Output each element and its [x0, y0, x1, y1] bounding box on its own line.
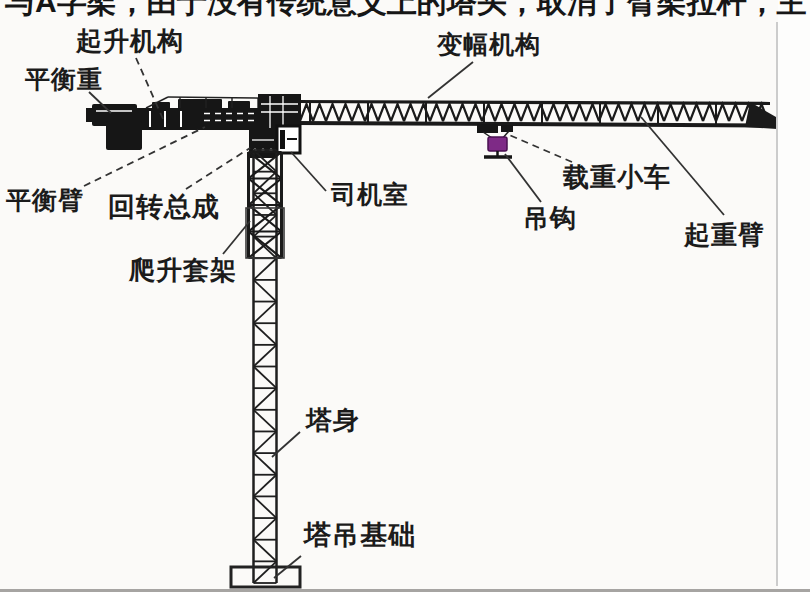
operator-cab-shape [277, 126, 300, 153]
diagram-page: 与A字架，由于没有传统意义上的塔头，取消了臂架拉杆，主 [0, 0, 810, 594]
leader-operator-cab [291, 152, 326, 191]
counterweight-block [86, 104, 142, 150]
label-hoisting-mechanism: 起升机构 [76, 28, 184, 55]
hoist-machinery [152, 99, 250, 109]
label-luffing-mechanism: 变幅机构 [437, 31, 541, 57]
leader-load-trolley [507, 134, 572, 162]
label-tower-foundation: 塔吊基础 [304, 521, 416, 549]
label-load-trolley: 载重小车 [563, 164, 671, 191]
jib-truss [296, 102, 777, 130]
foundation-shape [231, 567, 300, 587]
label-slewing-assembly: 回转总成 [108, 193, 220, 221]
label-counterweight: 平衡重 [25, 66, 103, 92]
label-tower-body: 塔身 [306, 407, 360, 434]
crane-diagram [0, 0, 810, 594]
leader-lines [84, 58, 724, 578]
tower-mast [254, 150, 277, 583]
label-jib: 起重臂 [684, 222, 765, 249]
climbing-frame-section [246, 152, 284, 258]
label-counterweight-arm: 平衡臂 [6, 187, 84, 213]
leader-counterweight-arm [84, 127, 205, 186]
label-hook: 吊钩 [523, 205, 577, 232]
leader-hook [505, 154, 541, 202]
hook-shape [483, 131, 512, 157]
leader-luffing-mechanism [428, 62, 473, 98]
label-climbing-frame: 爬升套架 [129, 257, 237, 284]
leader-slewing-assembly [186, 148, 250, 189]
label-operator-cab: 司机室 [331, 181, 409, 207]
